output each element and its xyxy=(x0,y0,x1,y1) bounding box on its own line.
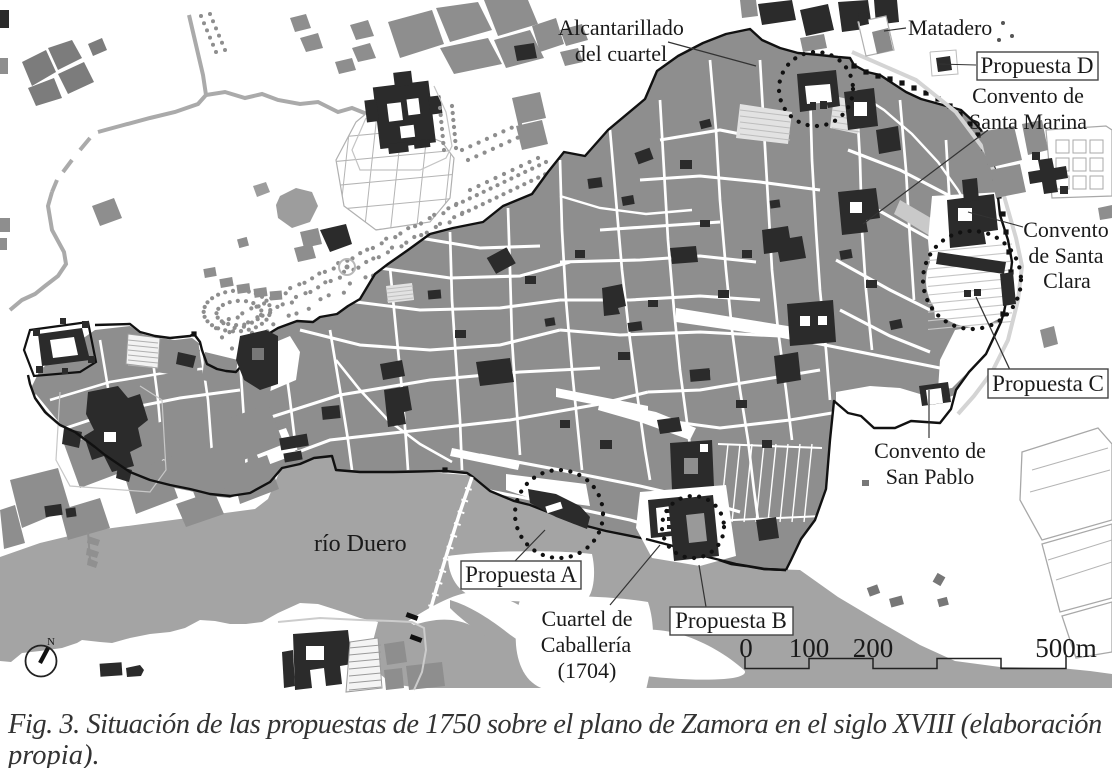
svg-text:río Duero: río Duero xyxy=(314,531,407,557)
svg-text:200: 200 xyxy=(853,633,894,663)
svg-text:de Santa: de Santa xyxy=(1028,243,1103,268)
svg-text:Propuesta C: Propuesta C xyxy=(992,371,1104,396)
svg-text:(1704): (1704) xyxy=(558,658,617,683)
svg-text:Propuesta A: Propuesta A xyxy=(465,562,577,587)
svg-text:San Pablo: San Pablo xyxy=(886,464,975,489)
svg-text:del cuartel: del cuartel xyxy=(575,41,667,66)
svg-text:N: N xyxy=(47,636,55,648)
svg-text:propia).: propia). xyxy=(6,740,100,768)
svg-text:Alcantarillado: Alcantarillado xyxy=(558,15,684,40)
svg-text:0: 0 xyxy=(739,633,753,663)
svg-text:Convento de: Convento de xyxy=(874,438,986,463)
svg-text:Clara: Clara xyxy=(1043,268,1091,293)
svg-text:Propuesta D: Propuesta D xyxy=(980,53,1093,78)
svg-text:100: 100 xyxy=(789,633,830,663)
svg-text:Matadero: Matadero xyxy=(908,15,992,40)
svg-text:Propuesta B: Propuesta B xyxy=(675,608,787,633)
svg-text:Santa Marina: Santa Marina xyxy=(969,109,1087,134)
svg-text:Caballería: Caballería xyxy=(541,632,632,657)
svg-text:Cuartel de: Cuartel de xyxy=(541,606,632,631)
svg-text:Convento: Convento xyxy=(1023,217,1109,242)
svg-text:500m: 500m xyxy=(1035,633,1097,663)
svg-text:Convento de: Convento de xyxy=(972,83,1084,108)
svg-text:Fig. 3. Situación de las propu: Fig. 3. Situación de las propuestas de 1… xyxy=(7,709,1102,740)
